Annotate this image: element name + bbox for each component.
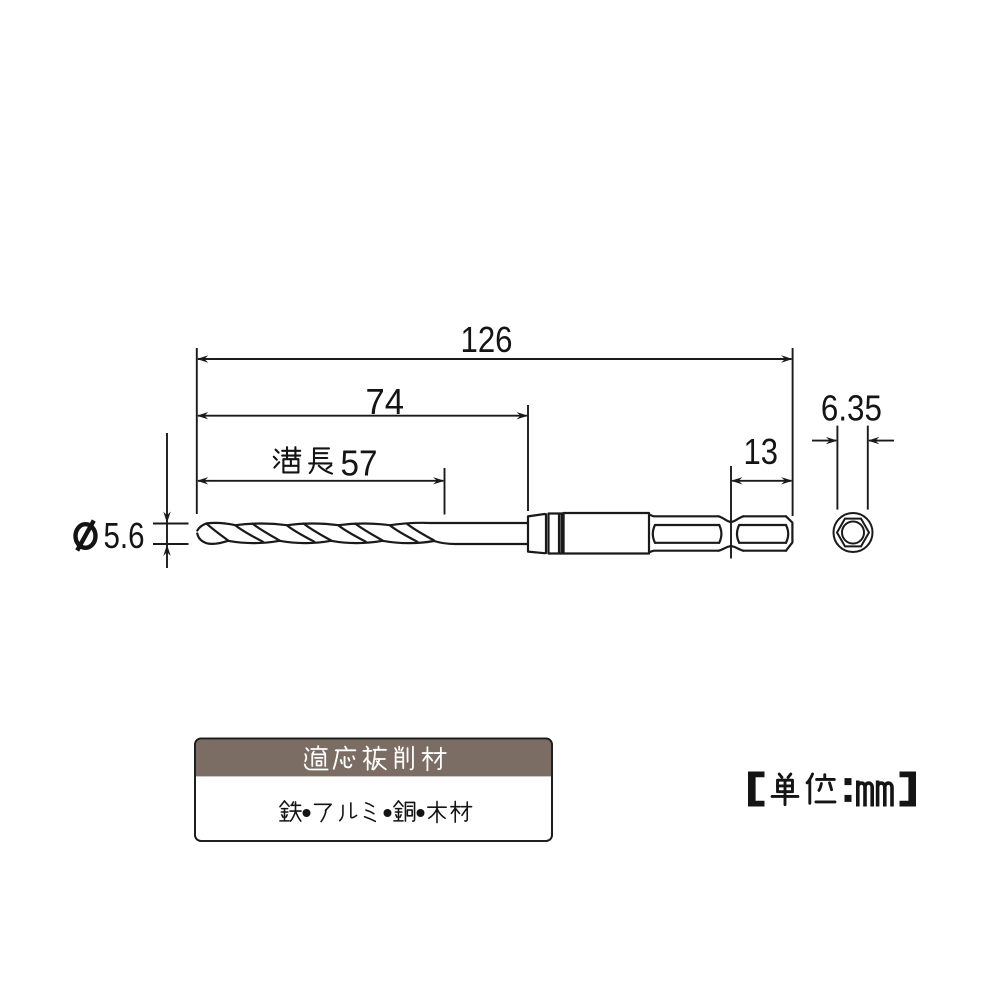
svg-text:6.35: 6.35	[821, 388, 882, 429]
svg-text:5.6: 5.6	[104, 515, 145, 556]
svg-text:57: 57	[341, 443, 378, 484]
svg-text:126: 126	[461, 319, 513, 360]
svg-text:13: 13	[744, 431, 779, 472]
svg-text:74: 74	[366, 381, 405, 422]
